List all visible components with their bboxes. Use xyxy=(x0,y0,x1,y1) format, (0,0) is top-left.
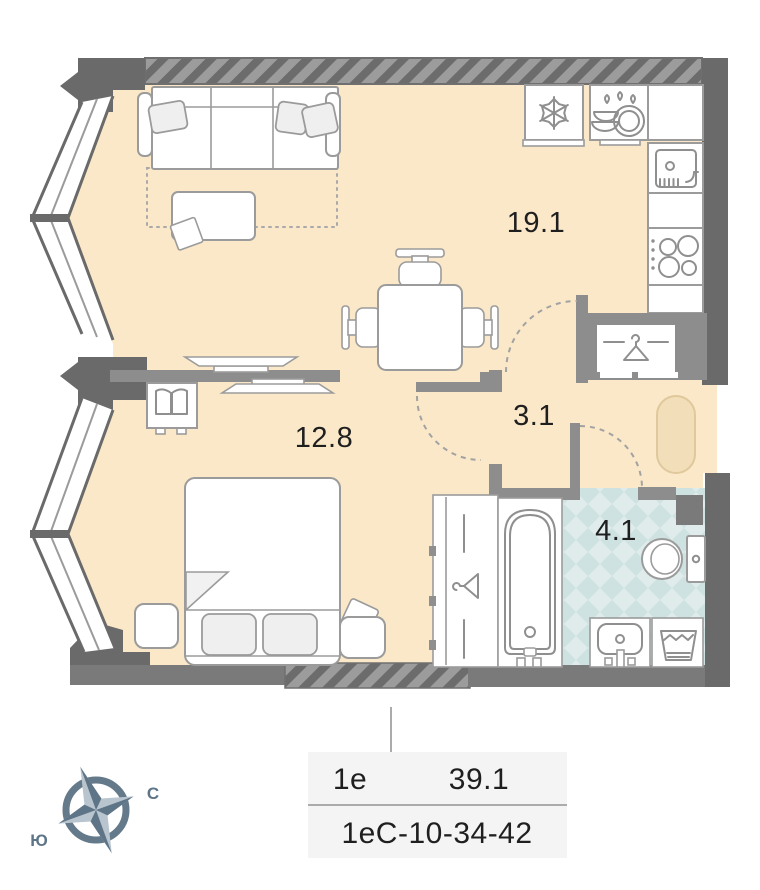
floor-plan: 19.1 12.8 3.1 4.1 1е 39.1 1еС-10-34-42 С… xyxy=(0,0,760,890)
label-bathroom: 4.1 xyxy=(595,515,637,547)
closet xyxy=(429,495,498,667)
living-wall-piece xyxy=(480,372,502,383)
nightstand xyxy=(147,383,197,434)
bottom-wall-right xyxy=(468,665,730,687)
kitchen-door-stub xyxy=(576,295,588,383)
dining-chair-top xyxy=(396,249,444,287)
info-table: 1е 39.1 1еС-10-34-42 xyxy=(308,707,567,858)
hall-wardrobe xyxy=(588,313,707,380)
bathroom-sink xyxy=(590,618,650,667)
bathroom-north-wall xyxy=(638,487,676,500)
label-bedroom: 12.8 xyxy=(295,422,353,454)
dining-table xyxy=(378,285,462,370)
label-hallway: 3.1 xyxy=(513,400,555,432)
fridge xyxy=(523,85,584,146)
bed xyxy=(185,478,340,665)
dishwasher xyxy=(590,85,648,145)
sofa xyxy=(138,87,340,169)
bathroom-door-stub xyxy=(570,423,580,489)
total-area: 39.1 xyxy=(449,763,509,796)
top-wall-hatched xyxy=(145,58,702,84)
kitchen-counter xyxy=(648,85,703,313)
dining-chair-right xyxy=(459,306,498,349)
bathtub xyxy=(498,498,562,667)
bedroom-door-stub xyxy=(416,382,502,392)
bedside-stool-left xyxy=(135,604,178,648)
laundry-basket xyxy=(652,618,703,667)
compass-star-icon xyxy=(43,753,150,867)
layout-type: 1е xyxy=(333,763,367,796)
right-wall-lower xyxy=(705,473,730,687)
compass-south: Ю xyxy=(30,831,48,850)
bathroom-corner-pier xyxy=(676,495,703,525)
compass-north: С xyxy=(147,784,159,803)
dining-chair-left xyxy=(342,306,381,349)
compass-rose: С Ю xyxy=(30,753,159,867)
label-kitchen-living: 19.1 xyxy=(507,207,565,239)
bottom-wall-left xyxy=(70,665,287,685)
doormat xyxy=(657,396,695,473)
unit-code: 1еС-10-34-42 xyxy=(341,817,532,850)
toilet xyxy=(642,536,705,582)
